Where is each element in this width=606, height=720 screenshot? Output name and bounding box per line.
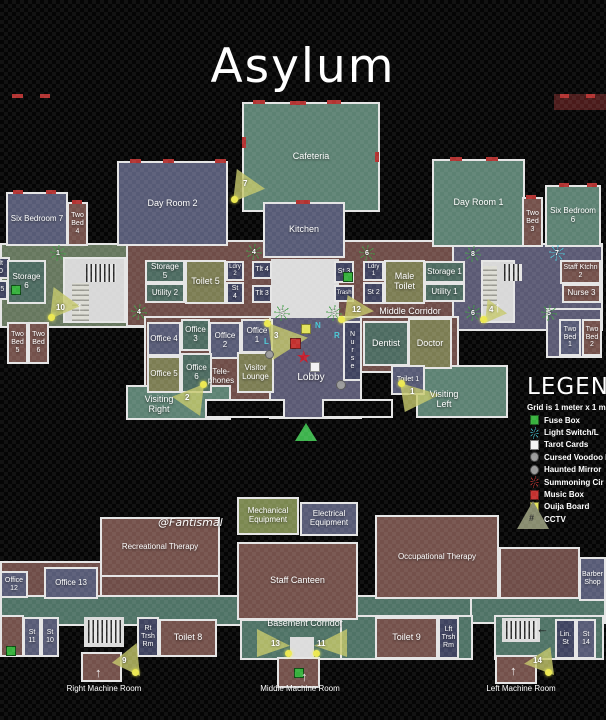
map-label: Visiting Left [420, 389, 468, 409]
legend-item-label: Haunted Mirror [544, 465, 601, 474]
light-switch-icon: 4 [131, 304, 147, 320]
legend-item-label: Light Switch/L [544, 428, 599, 437]
map-label: Basement Corridor [260, 618, 350, 628]
map-label: Right Machine Room [56, 685, 152, 694]
room-nurse: Nurse [343, 321, 362, 381]
room-cafeteria: Cafeteria [242, 102, 380, 212]
cctv-camera-dot [132, 669, 139, 676]
room-staff-ktchn-2: Staff Ktchn 2 [560, 260, 601, 284]
room-toilet-5: Toilet 5 [185, 260, 226, 304]
cctv-camera-dot [231, 196, 238, 203]
light-switch-number: 8 [471, 251, 475, 258]
cctv-camera-dot [398, 380, 405, 387]
legend-item-label: Cursed Voodoo D [544, 453, 606, 462]
light-switch-icon: 4 [246, 244, 262, 260]
room-st-14: St 14 [576, 619, 596, 659]
fuse-box-icon [11, 285, 21, 295]
light-switch-icon: 7 [549, 245, 565, 261]
light-switch-number: 5 [280, 310, 284, 317]
fuse-box-icon [6, 646, 16, 656]
legend-item-label: Ouija Board [544, 502, 589, 511]
room-utility-2: Utility 2 [145, 283, 185, 303]
room-male-toilet: Male Toilet [384, 260, 425, 304]
door-marker [253, 100, 265, 104]
door-marker [242, 137, 246, 148]
cctv-cone-number: 14 [533, 656, 542, 665]
item-circle-icon [336, 380, 346, 390]
legend-item: Cursed Voodoo D [527, 451, 606, 463]
room-kitchen: Kitchen [263, 202, 345, 258]
tarot-cards-icon [530, 440, 539, 449]
room-right-machine-room [81, 652, 122, 682]
door-marker [327, 100, 341, 104]
asylum-map-page: Asylum Six Bedroom 7Two Bed 4Day Room 2C… [0, 0, 606, 720]
item-square-icon [310, 362, 320, 372]
door-marker [13, 190, 23, 194]
room-office-12: Office 12 [0, 571, 28, 598]
cctv-cone-number: 11 [317, 639, 325, 648]
haunted-mirror-icon [530, 465, 539, 474]
door-marker [130, 159, 141, 163]
map-label: Lobby [291, 372, 331, 383]
room-utility-1: Utility 1 [424, 283, 465, 302]
legend-item: Fuse Box [527, 414, 606, 426]
legend: LEGEND Grid is 1 meter x 1 meter Fuse Bo… [527, 374, 606, 526]
room-tlt-3: Tlt 3 [252, 285, 272, 303]
item-square-icon [301, 324, 311, 334]
light-switch-number: 1 [56, 250, 60, 257]
music-box-icon [530, 490, 539, 499]
cctv-camera-dot [313, 650, 320, 657]
direction-arrow: ↑ [494, 300, 502, 315]
light-switch-icon: 6 [359, 245, 375, 261]
map-label: @Fantismal [158, 517, 222, 529]
legend-item-label: Summoning Cir [544, 478, 604, 487]
room-two-bed-3: Two Bed 3 [522, 197, 543, 247]
room-two-bed-6: Two Bed 6 [28, 322, 49, 364]
light-switch-number: 4 [252, 249, 256, 256]
direction-arrow: ↑ [95, 666, 102, 679]
cctv-cone-number: 4 [489, 305, 493, 314]
room-st-4: St 4 [226, 282, 244, 304]
stairs-icon [506, 621, 537, 639]
direction-arrow: ← [123, 622, 136, 635]
light-switch-number: 7 [555, 250, 559, 257]
light-switch-number: 5 [332, 310, 336, 317]
legend-item: Tarot Cards [527, 439, 606, 451]
legend-subtitle: Grid is 1 meter x 1 meter [527, 403, 606, 412]
room-doctor: Doctor [408, 318, 452, 369]
door-marker [450, 157, 462, 161]
door-marker [72, 200, 82, 204]
light-switch-number: 6 [365, 250, 369, 257]
room-storage-6: Storage 6 [7, 260, 46, 304]
legend-item: Music Box [527, 488, 606, 500]
door-marker [586, 94, 595, 98]
door-marker [290, 101, 306, 105]
room-st-11: St 11 [23, 617, 41, 657]
light-switch-icon: 1 [50, 245, 66, 261]
room-electrical-equipment: Electrical Equipment [300, 502, 358, 536]
light-switch-number: 5 [547, 310, 551, 317]
stairs-icon [504, 264, 522, 281]
light-switch-number: 6 [471, 310, 475, 317]
room-toilet-8: Toilet 8 [159, 619, 217, 657]
room-st-2: St 2 [363, 282, 384, 304]
cctv-cone-number: 13 [271, 639, 280, 648]
entrance-porch [322, 399, 393, 418]
room-lft-trsh-rm: Lft Trsh Rm [438, 617, 459, 659]
summoning-circle-icon: ★ [297, 350, 310, 365]
light-switch-icon: 8 [465, 246, 481, 262]
map-label: Left Machine Room [474, 685, 568, 694]
room-office-3: Office 3 [181, 319, 210, 351]
room-occupational-therapy: Occupational Therapy [375, 515, 499, 599]
cctv-cone-number: 1 [410, 387, 414, 396]
stairs-icon [88, 620, 121, 643]
room-mechanical-equipment: Mechanical Equipment [237, 497, 299, 535]
door-marker [375, 152, 379, 162]
entrance-triangle [295, 423, 317, 441]
cctv-camera-dot [285, 650, 292, 657]
map-label: Visiting Right [133, 394, 185, 414]
room-rt-trsh-rm: Rt Trsh Rm [137, 617, 159, 657]
map-label: Middle Machine Room [248, 685, 352, 694]
room-st-10: St 10 [41, 617, 59, 657]
cctv-cone-number: 10 [56, 303, 65, 312]
cctv-cone-number: 9 [122, 656, 126, 665]
room-staff-canteen: Staff Canteen [237, 542, 358, 620]
light-switch-icon: 5 [541, 305, 557, 321]
cctv-cone-number: 12 [352, 305, 361, 314]
door-marker [46, 190, 56, 194]
room-day-room-2: Day Room 2 [117, 161, 228, 246]
room-two-bed-1: Two Bed 1 [559, 319, 581, 356]
room-tlt-4: Tlt 4 [252, 261, 272, 279]
room-office-13: Office 13 [44, 567, 98, 599]
door-marker [587, 183, 597, 187]
item-circle-icon [265, 350, 274, 359]
floor-slab [290, 637, 314, 658]
room-lin-st: Lin. St [555, 619, 576, 659]
cctv-cone-sample: # [517, 501, 549, 529]
cctv-camera-dot [264, 320, 271, 327]
legend-item-label: Tarot Cards [544, 440, 588, 449]
door-marker [215, 159, 226, 163]
summoning-cir-icon [530, 478, 539, 487]
room-day-room-1: Day Room 1 [432, 159, 525, 247]
light-switch-icon: 6 [465, 305, 481, 321]
room-two-bed-4: Two Bed 4 [67, 202, 88, 246]
room-dentist: Dentist [363, 321, 409, 366]
door-marker [12, 94, 23, 98]
room-office-4: Office 4 [147, 322, 181, 356]
cctv-cone-number: 2 [185, 393, 189, 402]
lamp-letter-marker: N [315, 321, 321, 330]
room-storage-1: Storage 1 [424, 261, 465, 283]
room-six-bedroom-6: Six Bedroom 6 [545, 185, 601, 247]
legend-item: Light Switch/L [527, 426, 606, 438]
lamp-letter-marker: L [264, 337, 269, 346]
room-nurse-3: Nurse 3 [562, 284, 601, 303]
legend-title: LEGEND [527, 374, 606, 400]
room-ldry-2: Ldry 2 [226, 261, 244, 281]
room-office-5: Office 5 [147, 356, 181, 393]
map-label: Tele- phones [200, 368, 242, 386]
map-label: Middle Corridor [375, 306, 445, 316]
light-switch-l-icon [530, 428, 539, 437]
stairs-icon [86, 264, 116, 282]
room-ldry-1: Ldry 1 [363, 261, 384, 281]
room-six-bedroom-7: Six Bedroom 7 [6, 192, 68, 246]
direction-arrow: ↑ [301, 670, 308, 683]
room-barber-shop: Barber Shop [579, 557, 606, 601]
direction-arrow: ↑ [76, 300, 84, 315]
cctv-camera-dot [338, 316, 345, 323]
entrance-porch [205, 399, 285, 418]
cctv-cone-number: 3 [274, 331, 278, 340]
light-switch-number: 4 [137, 309, 141, 316]
light-switch-icon: 5 [274, 305, 290, 321]
door-marker [526, 195, 536, 199]
cctv-camera-dot [48, 314, 55, 321]
door-marker [40, 94, 50, 98]
lamp-letter-marker: R [334, 331, 340, 340]
door-marker [486, 157, 498, 161]
room-two-bed-2: Two Bed 2 [582, 319, 602, 356]
cctv-cone-number: 7 [243, 179, 247, 188]
direction-arrow: ← [536, 622, 549, 635]
door-marker [560, 94, 569, 98]
cone-number-symbol: # [529, 513, 534, 523]
fuse-box-icon [343, 272, 353, 282]
item-square-icon [290, 338, 301, 349]
legend-item-label: Fuse Box [544, 416, 580, 425]
door-marker [163, 159, 174, 163]
door-marker [296, 200, 310, 204]
floor-plan: Six Bedroom 7Two Bed 4Day Room 2Cafeteri… [0, 0, 606, 720]
direction-arrow: ↑ [510, 664, 517, 677]
fuse-box-icon [530, 416, 539, 425]
legend-item-label: Music Box [544, 490, 584, 499]
floor-slab [499, 547, 580, 600]
cursed-voodoo-d-icon [530, 453, 539, 462]
room-toilet-9: Toilet 9 [375, 617, 438, 659]
cctv-camera-dot [545, 669, 552, 676]
page-title: Asylum [0, 39, 606, 94]
room-storage-5: Storage 5 [145, 260, 185, 283]
legend-item: Haunted Mirror [527, 464, 606, 476]
door-marker [559, 183, 569, 187]
legend-item: Summoning Cir [527, 476, 606, 488]
cctv-camera-dot [480, 316, 487, 323]
room-two-bed-5: Two Bed 5 [7, 322, 28, 364]
